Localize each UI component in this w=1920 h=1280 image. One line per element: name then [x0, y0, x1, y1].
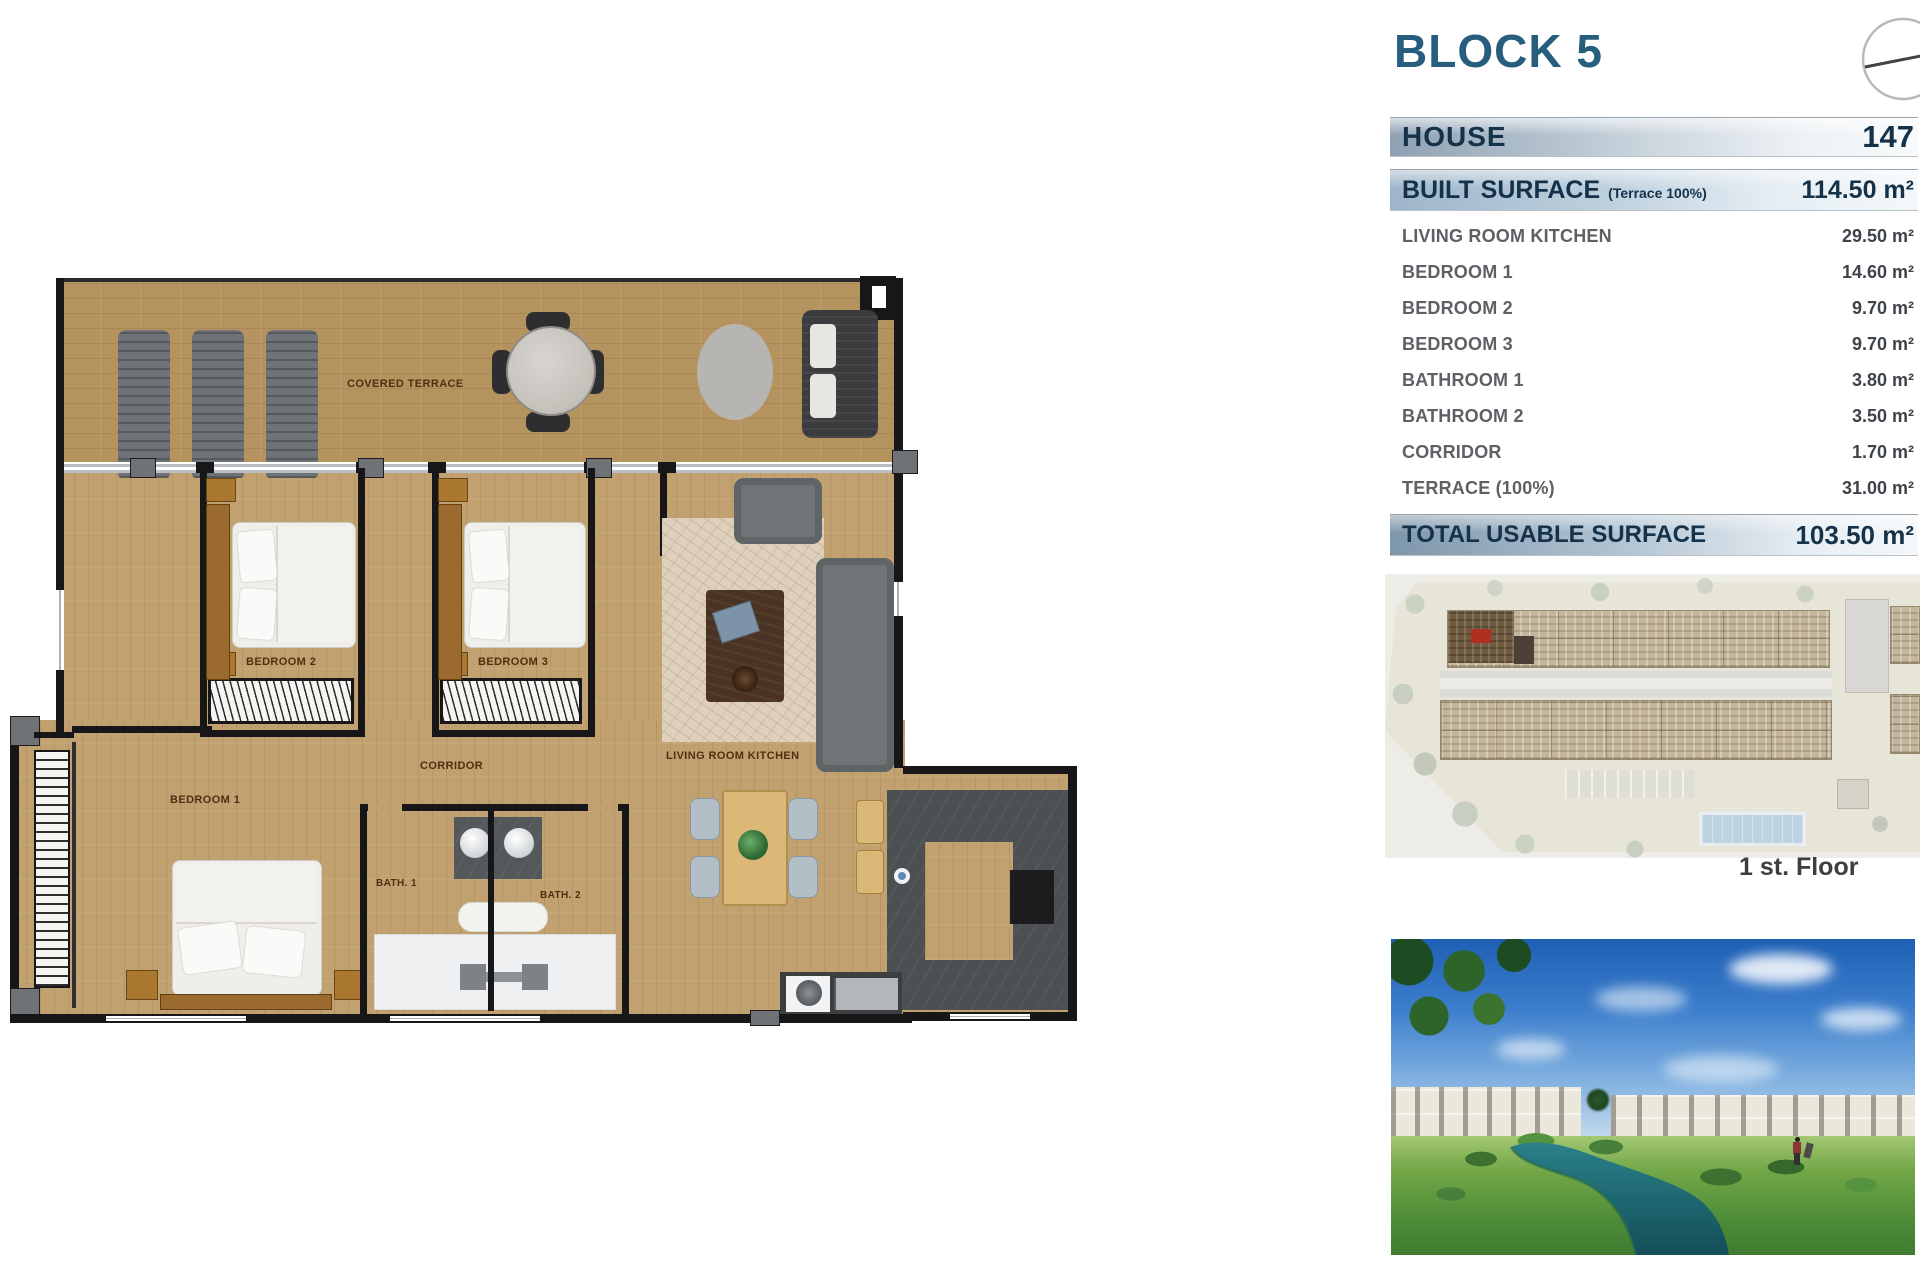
table-row: TERRACE (100%) 31.00 m² — [1390, 470, 1918, 506]
sun-lounger — [266, 330, 318, 478]
compass-icon — [1858, 14, 1920, 104]
site-parking — [1565, 770, 1695, 798]
row-label: BEDROOM 1 — [1390, 262, 1513, 283]
bedroom1-label: BEDROOM 1 — [170, 794, 240, 806]
block-title: BLOCK 5 — [1394, 24, 1603, 78]
pillar-slot — [872, 286, 886, 308]
bedroom3-label: BEDROOM 3 — [478, 656, 548, 668]
site-units-row-bottom — [1440, 700, 1832, 760]
row-value: 14.60 m² — [1842, 262, 1918, 283]
row-label: BATHROOM 2 — [1390, 406, 1524, 427]
terrace-window-band — [64, 462, 894, 473]
sun-lounger — [118, 330, 170, 478]
left-wall-window — [56, 590, 64, 670]
bar-stool — [856, 800, 884, 844]
table-row: BATHROOM 2 3.50 m² — [1390, 398, 1918, 434]
terrace-round-table — [506, 326, 596, 416]
bath-door-gap — [368, 804, 402, 811]
site-gray-building — [1845, 599, 1889, 693]
bedroom2-nightstand — [206, 478, 236, 502]
table-row: BATHROOM 1 3.80 m² — [1390, 362, 1918, 398]
row-label: BEDROOM 3 — [1390, 334, 1513, 355]
bedroom3-bottom-wall — [432, 730, 595, 737]
highlighted-unit-annex — [1514, 636, 1534, 664]
terrace-sofa-cushion — [810, 324, 836, 368]
kitchen-inner-floor — [925, 842, 1013, 960]
house-bar: HOUSE 147 — [1390, 117, 1918, 157]
site-units-right-edge — [1890, 694, 1920, 754]
built-surface-note: (Terrace 100%) — [1600, 179, 1707, 201]
bath-right-wall — [622, 804, 629, 1014]
bath-door-gap — [588, 804, 618, 811]
kitchen-appliance — [1010, 870, 1054, 924]
balcony-top-wall — [34, 732, 74, 738]
bar-stool — [856, 850, 884, 894]
total-label: TOTAL USABLE SURFACE — [1390, 521, 1706, 549]
row-value: 3.80 m² — [1852, 370, 1918, 391]
bedroom1-pillow — [177, 920, 243, 976]
row-value: 31.00 m² — [1842, 478, 1918, 499]
bedroom3-pillow — [468, 528, 510, 583]
entrance-block — [750, 1010, 780, 1026]
house-number: 147 — [1862, 119, 1918, 155]
bedroom2-pillow — [236, 528, 278, 583]
site-pool — [1699, 812, 1806, 846]
kitchen-right-wall — [1068, 766, 1077, 1021]
living-right-wall — [894, 474, 903, 768]
terrace-rug — [697, 324, 773, 420]
side-balcony-louvers — [34, 750, 70, 988]
sun-lounger — [192, 330, 244, 478]
site-small-building — [1837, 779, 1869, 809]
bedroom2-pillow — [236, 587, 278, 642]
bedroom1-pillow — [242, 925, 307, 979]
table-plant — [738, 830, 768, 860]
terrace-floor — [60, 282, 900, 464]
coffee-table-decor — [732, 666, 758, 692]
site-road-center — [1440, 678, 1832, 689]
bottom-window — [106, 1016, 246, 1021]
dining-chair — [690, 856, 720, 898]
row-label: BATHROOM 1 — [1390, 370, 1524, 391]
bedroom3-pillow — [468, 587, 510, 642]
table-row: BEDROOM 1 14.60 m² — [1390, 254, 1918, 290]
row-value: 3.50 m² — [1852, 406, 1918, 427]
band-pillar — [130, 458, 156, 478]
built-surface-value: 114.50 m² — [1801, 176, 1918, 205]
bedroom2-wardrobe — [208, 678, 354, 724]
house-label: HOUSE — [1390, 121, 1507, 153]
built-surface-label: BUILT SURFACE — [1390, 176, 1600, 205]
terrace-sofa-cushion — [810, 374, 836, 418]
corridor-label: CORRIDOR — [420, 760, 483, 772]
oven-door — [796, 980, 822, 1006]
row-value: 29.50 m² — [1842, 226, 1918, 247]
highlighted-unit-marker — [1471, 629, 1491, 643]
row-label: TERRACE (100%) — [1390, 478, 1555, 499]
bedroom1-top-wall — [72, 726, 212, 733]
bedroom3-wardrobe — [440, 678, 582, 724]
bottom-left-outer-wall — [10, 716, 19, 1022]
bedroom2-bottom-wall — [200, 730, 365, 737]
bath1-label: BATH. 1 — [376, 878, 417, 889]
bedroom3-nightstand — [438, 478, 468, 502]
cooktop — [834, 978, 898, 1010]
living-junction-pillar — [892, 450, 918, 474]
bath2-label: BATH. 2 — [540, 890, 581, 901]
row-label: LIVING ROOM KITCHEN — [1390, 226, 1612, 247]
table-row: CORRIDOR 1.70 m² — [1390, 434, 1918, 470]
bath-sink — [460, 828, 490, 858]
bottom-window — [390, 1016, 540, 1021]
total-value: 103.50 m² — [1795, 520, 1918, 551]
site-plan — [1385, 574, 1920, 858]
bedroom2-label: BEDROOM 2 — [246, 656, 316, 668]
photo-tree — [1391, 939, 1569, 1081]
total-surface-bar: TOTAL USABLE SURFACE 103.50 m² — [1390, 514, 1918, 556]
built-surface-bar: BUILT SURFACE (Terrace 100%) 114.50 m² — [1390, 169, 1918, 211]
row-value: 9.70 m² — [1852, 334, 1918, 355]
terrace-top-wall — [58, 278, 902, 282]
kitchen-faucet — [898, 872, 906, 880]
table-row: BEDROOM 2 9.70 m² — [1390, 290, 1918, 326]
row-value: 9.70 m² — [1852, 298, 1918, 319]
living-right-window — [894, 582, 903, 616]
bedroom3-headboard — [438, 504, 462, 680]
floor-plan: COVERED TERRACE BEDROOM 2 — [10, 272, 1080, 1024]
site-plan-floor-label: 1 st. Floor — [1739, 853, 1858, 882]
bedroom3-right-wall — [588, 468, 595, 736]
bedroom3-duvet — [508, 526, 582, 642]
table-row: BEDROOM 3 9.70 m² — [1390, 326, 1918, 362]
bedroom2-headboard — [206, 504, 230, 680]
brochure-page: COVERED TERRACE BEDROOM 2 — [0, 0, 1920, 1280]
row-label: CORRIDOR — [1390, 442, 1502, 463]
bedroom2-right-wall — [358, 468, 365, 736]
table-row: LIVING ROOM KITCHEN 29.50 m² — [1390, 218, 1918, 254]
bedroom2-duvet — [276, 526, 352, 642]
towel-rail-end — [460, 964, 486, 990]
golf-bag — [1803, 1142, 1813, 1158]
bath-sink — [504, 828, 534, 858]
balcony-inner-wall — [72, 742, 76, 1008]
golfer — [1791, 1137, 1815, 1167]
row-label: BEDROOM 2 — [1390, 298, 1513, 319]
living-room-label: LIVING ROOM KITCHEN — [666, 750, 800, 762]
bath-shelf — [458, 902, 548, 932]
living-sofa — [816, 558, 894, 772]
bedroom1-duvet — [176, 864, 316, 924]
bath-divider-wall — [488, 811, 494, 1011]
kitchen-top-wall — [903, 766, 1075, 774]
covered-terrace-label: COVERED TERRACE — [347, 378, 464, 390]
bath-left-wall — [360, 804, 367, 1014]
corner-block — [10, 716, 40, 746]
site-units-right-edge — [1890, 606, 1920, 664]
golfer-legs — [1794, 1153, 1800, 1165]
dining-chair — [690, 798, 720, 840]
bottom-window — [950, 1014, 1030, 1019]
project-photo — [1391, 939, 1915, 1255]
towel-rail-end — [522, 964, 548, 990]
row-value: 1.70 m² — [1852, 442, 1918, 463]
bedroom1-nightstand — [126, 970, 158, 1000]
living-armchair — [734, 478, 822, 544]
dining-chair — [788, 856, 818, 898]
bedroom1-headboard — [160, 994, 332, 1010]
dining-chair — [788, 798, 818, 840]
